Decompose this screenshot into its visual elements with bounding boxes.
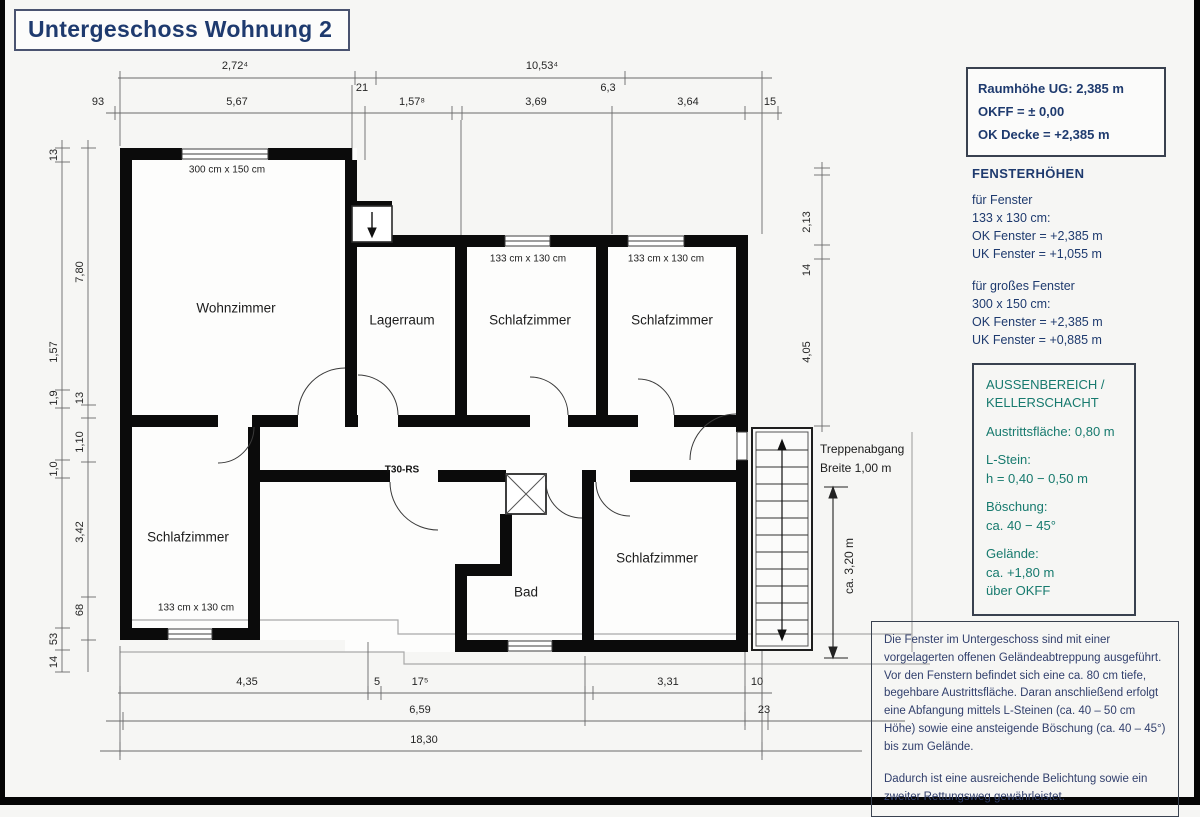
dim-label: 4,05: [801, 341, 813, 362]
gelaende-ref: über OKFF: [986, 582, 1122, 600]
stairs-glyph: [752, 428, 812, 650]
room-label-schlafzimmer-top-right: Schlafzimmer: [631, 313, 713, 328]
light-shaft-top: [352, 201, 392, 242]
dim-label: 1,10: [74, 431, 86, 452]
fenster-small-size: 133 x 130 cm:: [972, 210, 1172, 228]
raumhoehe-line: Raumhöhe UG: 2,385 m: [978, 78, 1154, 101]
aussen-heading: AUSSENBEREICH / KELLERSCHACHT: [986, 376, 1122, 413]
fenster-big-ok: OK Fenster = +2,385 m: [972, 314, 1172, 332]
dim-label: 14: [48, 656, 60, 668]
aussen-heading-line1: AUSSENBEREICH /: [986, 376, 1122, 394]
lstein-label: L-Stein:: [986, 451, 1122, 469]
fenster-small-ok: OK Fenster = +2,385 m: [972, 228, 1172, 246]
aussen-austritt: Austrittsfläche: 0,80 m: [986, 423, 1122, 441]
boeschung-label: Böschung:: [986, 498, 1122, 516]
dim-label: 2,72⁴: [222, 60, 248, 72]
dim-label: 2,13: [801, 211, 813, 232]
stairs-height-dim: ca. 3,20 m: [842, 538, 856, 594]
fenster-big-title: für großes Fenster: [972, 278, 1172, 296]
dim-label: 5,67: [226, 96, 247, 108]
window-label-big: 300 cm x 150 cm: [189, 165, 265, 176]
dim-label: 53: [48, 633, 60, 645]
room-label-schlafzimmer-top-mid: Schlafzimmer: [489, 313, 571, 328]
dim-label: 1,57: [48, 341, 60, 362]
dim-label: 15: [764, 96, 776, 108]
dim-label: 3,69: [525, 96, 546, 108]
fenster-big-uk: UK Fenster = +0,885 m: [972, 332, 1172, 350]
dim-label: 6,59: [409, 704, 430, 716]
dim-label: 68: [74, 604, 86, 616]
window-label-1: 133 cm x 130 cm: [490, 254, 566, 265]
dim-label: 21: [356, 82, 368, 94]
dim-label: 3,42: [74, 521, 86, 542]
dim-label: 18,30: [410, 734, 438, 746]
room-label-wohnzimmer: Wohnzimmer: [196, 301, 275, 316]
room-label-lagerraum: Lagerraum: [369, 313, 434, 328]
dim-label: 93: [92, 96, 104, 108]
dim-label: 3,64: [677, 96, 698, 108]
stairs-note-line2: Breite 1,00 m: [820, 459, 904, 478]
dim-label: 13: [74, 392, 86, 404]
dim-label: 5: [374, 676, 380, 688]
ok-decke-line: OK Decke = +2,385 m: [978, 124, 1154, 147]
dim-label: 13: [48, 149, 60, 161]
dim-label: 7,80: [74, 261, 86, 282]
boeschung-value: ca. 40 − 45°: [986, 517, 1122, 535]
aussen-gelaende: Gelände: ca. +1,80 m über OKFF: [986, 545, 1122, 600]
fenster-note-box: Die Fenster im Untergeschoss sind mit ei…: [871, 621, 1179, 817]
aussen-lstein: L-Stein: h = 0,40 − 0,50 m: [986, 451, 1122, 488]
fenster-small-title: für Fenster: [972, 192, 1172, 210]
dim-label: 1,0: [48, 461, 60, 476]
fire-door-label: T30-RS: [385, 465, 419, 476]
okff-line: OKFF = ± 0,00: [978, 101, 1154, 124]
aussenbereich-box: AUSSENBEREICH / KELLERSCHACHT Austrittsf…: [972, 363, 1136, 616]
stairs-note: Treppenabgang Breite 1,00 m: [820, 440, 904, 477]
aussen-boeschung: Böschung: ca. 40 − 45°: [986, 498, 1122, 535]
gelaende-label: Gelände:: [986, 545, 1122, 563]
page-edge-left: [0, 0, 5, 805]
fenster-group-small: für Fenster 133 x 130 cm: OK Fenster = +…: [972, 192, 1172, 263]
window-label-2: 133 cm x 130 cm: [628, 254, 704, 265]
dim-label: 4,35: [236, 676, 257, 688]
fenster-group-big: für großes Fenster 300 x 150 cm: OK Fens…: [972, 278, 1172, 349]
dim-label: 10: [751, 676, 763, 688]
note-paragraph-2: Dadurch ist eine ausreichende Belichtung…: [884, 771, 1166, 807]
gelaende-value: ca. +1,80 m: [986, 564, 1122, 582]
dim-label: 1,57⁸: [399, 96, 425, 108]
lstein-value: h = 0,40 − 0,50 m: [986, 470, 1122, 488]
note-paragraph-1: Die Fenster im Untergeschoss sind mit ei…: [884, 632, 1166, 757]
fenster-small-uk: UK Fenster = +1,055 m: [972, 246, 1172, 264]
dim-label: 1,9: [48, 390, 60, 405]
fensterhoehen-block: FENSTERHÖHEN für Fenster 133 x 130 cm: O…: [972, 165, 1172, 364]
duct-shaft: [506, 474, 546, 514]
dim-label: 17⁵: [412, 676, 429, 688]
room-label-schlafzimmer-se: Schlafzimmer: [616, 551, 698, 566]
page-title: Untergeschoss Wohnung 2: [14, 9, 350, 51]
fensterhoehen-heading: FENSTERHÖHEN: [972, 165, 1172, 183]
dim-label: 6,3: [600, 82, 615, 94]
fenster-big-size: 300 x 150 cm:: [972, 296, 1172, 314]
room-label-bad: Bad: [514, 585, 538, 600]
aussen-heading-line2: KELLERSCHACHT: [986, 394, 1122, 412]
dim-label: 3,31: [657, 676, 678, 688]
building-interior: [120, 148, 748, 652]
stairs-note-line1: Treppenabgang: [820, 440, 904, 459]
room-label-schlafzimmer-sw: Schlafzimmer: [147, 530, 229, 545]
dim-label: 23: [758, 704, 770, 716]
room-height-info-box: Raumhöhe UG: 2,385 m OKFF = ± 0,00 OK De…: [966, 67, 1166, 157]
dim-label: 14: [801, 264, 813, 276]
dim-label: 10,53⁴: [526, 60, 558, 72]
window-label-3: 133 cm x 130 cm: [158, 603, 234, 614]
page-edge-right: [1194, 0, 1200, 805]
